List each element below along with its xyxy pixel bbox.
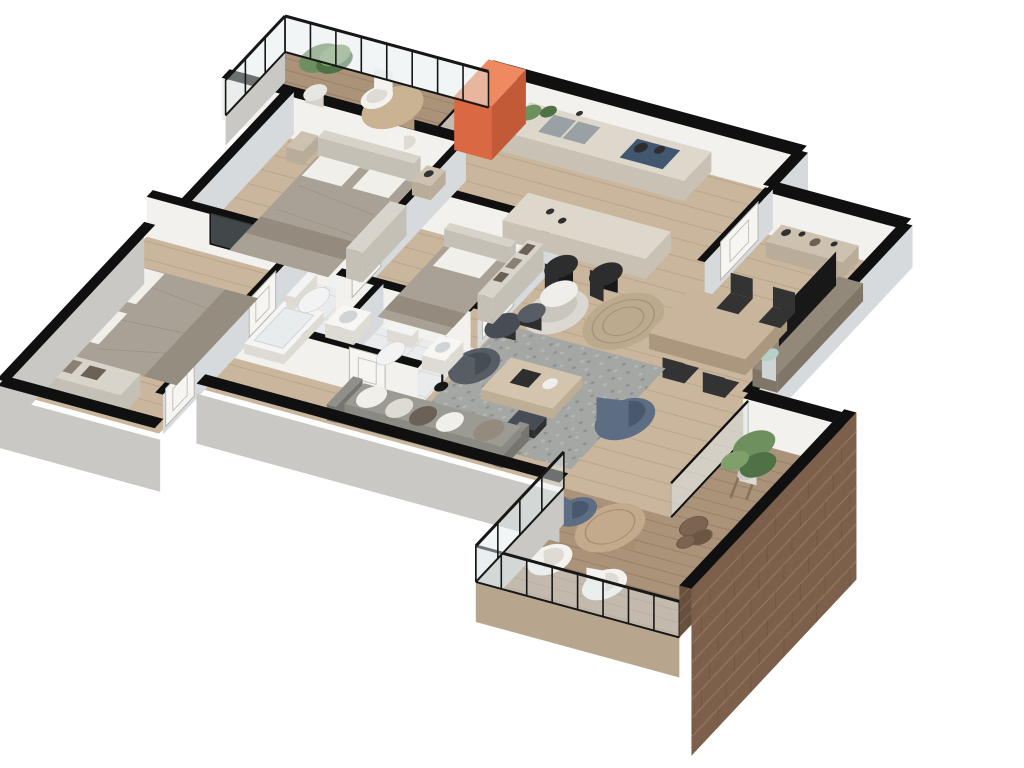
egg-chair-back: [597, 397, 629, 431]
floor-plan-canvas: [0, 0, 1024, 768]
apartment-3d-floor-plan-render: [0, 0, 1024, 768]
